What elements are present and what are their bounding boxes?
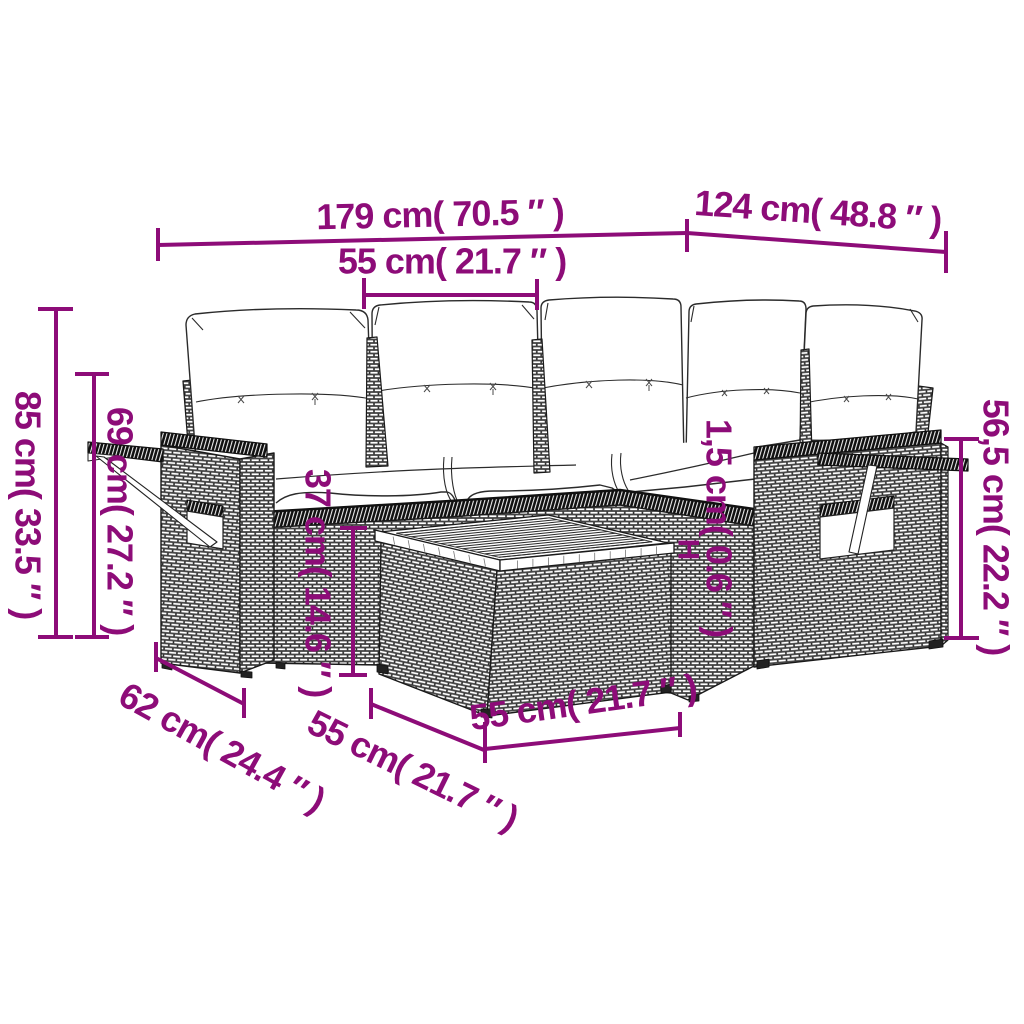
svg-text:69 cm( 27.2 ″ ): 69 cm( 27.2 ″ ) — [100, 407, 141, 635]
svg-text:85 cm( 33.5 ″ ): 85 cm( 33.5 ″ ) — [8, 391, 49, 619]
svg-text:37 cm( 14.6 ″ ): 37 cm( 14.6 ″ ) — [298, 469, 339, 697]
svg-text:1,5 cm( 0.6 ″ ): 1,5 cm( 0.6 ″ ) — [699, 419, 740, 637]
svg-text:H: H — [672, 539, 705, 560]
svg-text:179 cm( 70.5 ″ ): 179 cm( 70.5 ″ ) — [316, 191, 564, 238]
svg-text:55 cm( 21.7 ″ ): 55 cm( 21.7 ″ ) — [338, 241, 566, 282]
svg-text:56,5 cm( 22.2 ″ ): 56,5 cm( 22.2 ″ ) — [976, 399, 1017, 655]
